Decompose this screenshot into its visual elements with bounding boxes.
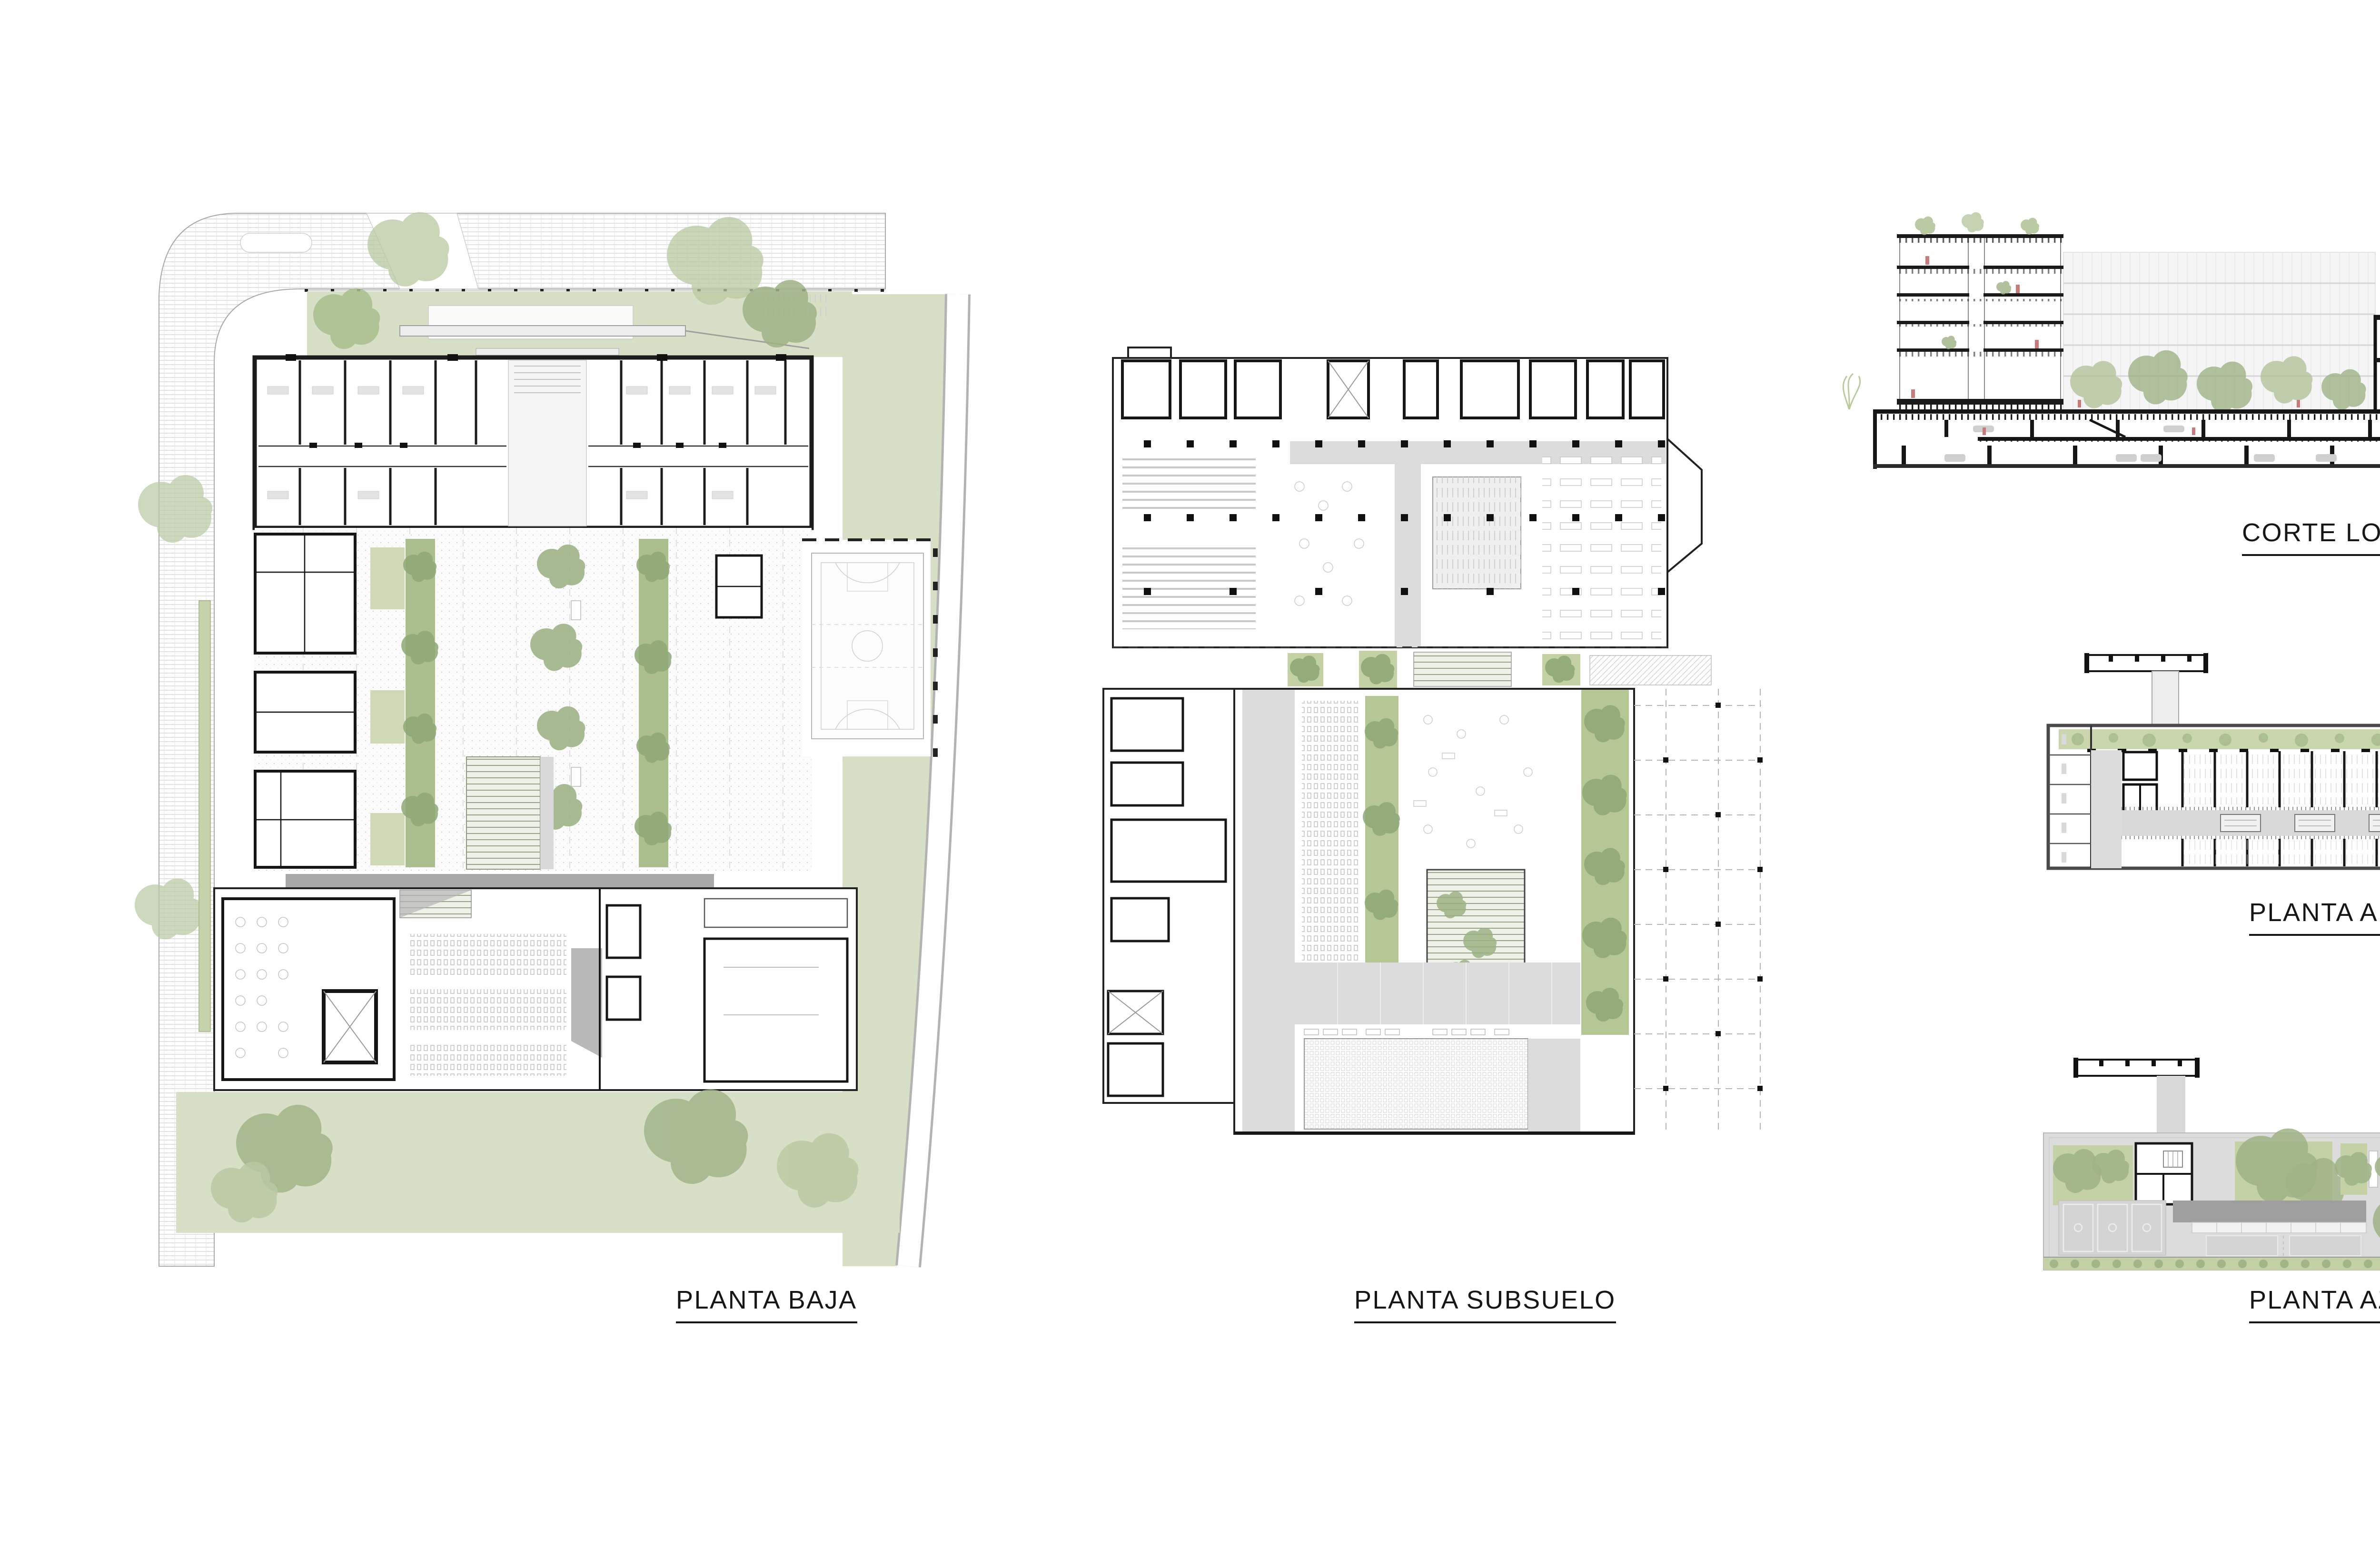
south-lawn [176,1089,900,1233]
patio-strip [1288,651,1711,688]
tree-icon [135,878,201,939]
entry-canopy [400,326,685,336]
label-planta-subsuelo: PLANTA SUBSUELO [1354,1285,1616,1323]
roof-planters [2335,1143,2380,1195]
label-planta-aulas: PLANTA AULAS [2249,898,2380,936]
roof-hedge [2043,1257,2380,1270]
lower-hall [1103,689,1634,1134]
skylight-strip [2173,1201,2366,1222]
corte-longitudinal-drawing [1843,212,2380,469]
drawings-canvas [0,0,2380,1558]
access-bridge [2073,1058,2200,1133]
basement-section [1873,400,2380,469]
left-building-section [1843,212,2063,411]
stair-core [2123,752,2157,780]
presentation-sheet: PLANTA BAJA PLANTA SUBSUELO CORTE LONGIT… [0,0,2380,1558]
roof-stair-core [2136,1143,2192,1204]
tree-icon [138,475,212,543]
auditorium-seats [1304,1039,1528,1129]
planta-subsuelo-drawing [1103,347,1763,1134]
classroom-wing [255,348,812,528]
planta-azotea-drawing [2043,1058,2380,1270]
seat-rows [409,934,566,975]
structural-grid [1634,689,1761,1134]
label-planta-azotea: PLANTA AZOTEA [2249,1285,2380,1323]
upper-hall [1113,347,1702,647]
auditorium-block [214,874,857,1095]
access-bridge [2084,653,2208,725]
planta-aulas-drawing [2048,653,2380,868]
palm-tree-icon [1843,374,1860,409]
planta-baja-drawing [135,212,958,1266]
courtyard-stair [466,757,540,869]
right-building-section [2375,218,2380,409]
label-corte-longitudinal: CORTE LONGITUDINAL [2242,518,2380,556]
label-planta-baja: PLANTA BAJA [676,1285,857,1323]
